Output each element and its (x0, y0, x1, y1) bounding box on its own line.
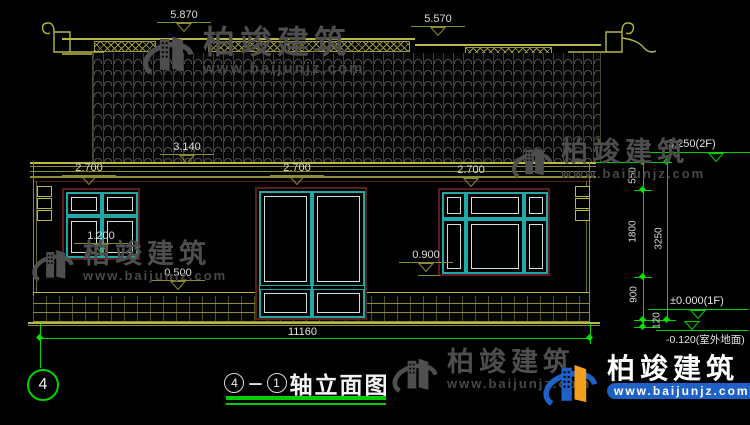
window-pane (525, 193, 547, 218)
title-underline-thin (226, 403, 386, 405)
pilaster-corbel (37, 210, 52, 221)
brand-logo-icon (388, 348, 440, 406)
pilaster-corbel (37, 198, 52, 209)
door-panel-upper (313, 192, 364, 286)
level-value: 0.900 (399, 249, 453, 261)
level-2f-triangle (708, 153, 724, 162)
cad-elevation-drawing: 5.870 5.570 3.140 2.700 2.700 2.700 1.20… (0, 0, 750, 425)
level-value: 3.140 (160, 141, 214, 153)
level-value: 2.700 (62, 162, 116, 174)
brand-url: www.baijunjz.com (83, 268, 227, 283)
dim-900: 900 (629, 277, 640, 313)
window-pane (67, 193, 101, 215)
brand-logo-icon (508, 138, 554, 190)
brand-logo-icon (28, 240, 76, 294)
brand-url: www.baijunjz.com (203, 60, 364, 77)
pilaster-corbel (575, 198, 590, 209)
door-leaf-left (260, 192, 311, 317)
watermark-mid-left: 柏竣建筑 www.baijunjz.com (28, 240, 227, 294)
dim-line-total-width (40, 338, 590, 339)
ground-line (28, 322, 600, 324)
window-right (438, 188, 550, 276)
pilaster-corbel (575, 210, 590, 221)
watermark-top: 柏竣建筑 www.baijunjz.com (138, 26, 364, 88)
brand-logo-icon (538, 354, 600, 420)
level-mark-door-top: 2.700 (270, 162, 324, 185)
window-pane (467, 193, 523, 218)
window-pane (103, 193, 137, 215)
title-axis-from: 4 (224, 373, 244, 393)
title-axis-to: 1 (267, 373, 287, 393)
door-leaf-right (313, 192, 364, 317)
pilaster-corbel (37, 186, 52, 197)
window-pane (467, 220, 523, 273)
brand-name: 柏竣建筑 (607, 354, 750, 383)
dim-tick (586, 334, 593, 341)
dim-1800: 1800 (628, 214, 639, 250)
door-panel-lower (313, 289, 364, 317)
sill-extension-line (418, 275, 440, 276)
title-underline-thick (226, 396, 386, 400)
door-panel-lower (260, 289, 311, 317)
brand-name: 柏竣建筑 (83, 240, 227, 268)
brand-url: www.baijunjz.com (607, 383, 750, 399)
dim-tick (36, 334, 43, 341)
brand-name: 柏竣建筑 (561, 138, 705, 166)
drawing-title: 4 － 1 轴立面图 (222, 366, 392, 400)
level-ground-triangle (684, 321, 700, 330)
dim-3250: 3250 (654, 221, 665, 257)
watermark-mid-right: 柏竣建筑 www.baijunjz.com (508, 138, 705, 190)
brand-name: 柏竣建筑 (203, 26, 364, 60)
level-value: 5.870 (157, 9, 211, 21)
level-1f-triangle (690, 310, 706, 319)
level-mark-window-top-left: 2.700 (62, 162, 116, 185)
level-mark-ridge-right: 5.570 (411, 13, 465, 36)
window-pane (525, 220, 547, 273)
dim-tick (639, 273, 646, 280)
level-mark-window-top-right: 2.700 (444, 164, 498, 187)
level-value: 2.700 (444, 164, 498, 176)
dim-tick (639, 323, 646, 330)
level-ground-line (656, 330, 748, 331)
entry-door (255, 187, 367, 320)
brand-url: www.baijunjz.com (561, 166, 705, 181)
roof-end-ornament-right (566, 18, 658, 56)
watermark-brand-color: 柏竣建筑 www.baijunjz.com (538, 354, 750, 420)
window-pane (443, 193, 465, 218)
level-value: 2.700 (270, 162, 324, 174)
level-ground-label: -0.120(室外地面) (666, 334, 745, 346)
level-mark-sill-right: 0.900 (399, 249, 453, 272)
level-mark-eave: 3.140 (160, 141, 214, 164)
dim-120: 120 (652, 303, 663, 339)
level-1f-label: ±0.000(1F) (670, 295, 724, 307)
roof-end-ornament-left (40, 18, 108, 56)
axis-bubble-4: 4 (27, 369, 59, 401)
dim-11160: 11160 (288, 326, 317, 338)
level-value: 5.570 (411, 13, 465, 25)
dim-extension-left (40, 324, 41, 368)
title-text: 轴立面图 (290, 366, 390, 400)
door-panel-upper (260, 192, 311, 286)
title-separator: － (247, 371, 263, 395)
brand-logo-icon (138, 26, 196, 88)
dim-tick (663, 316, 670, 323)
